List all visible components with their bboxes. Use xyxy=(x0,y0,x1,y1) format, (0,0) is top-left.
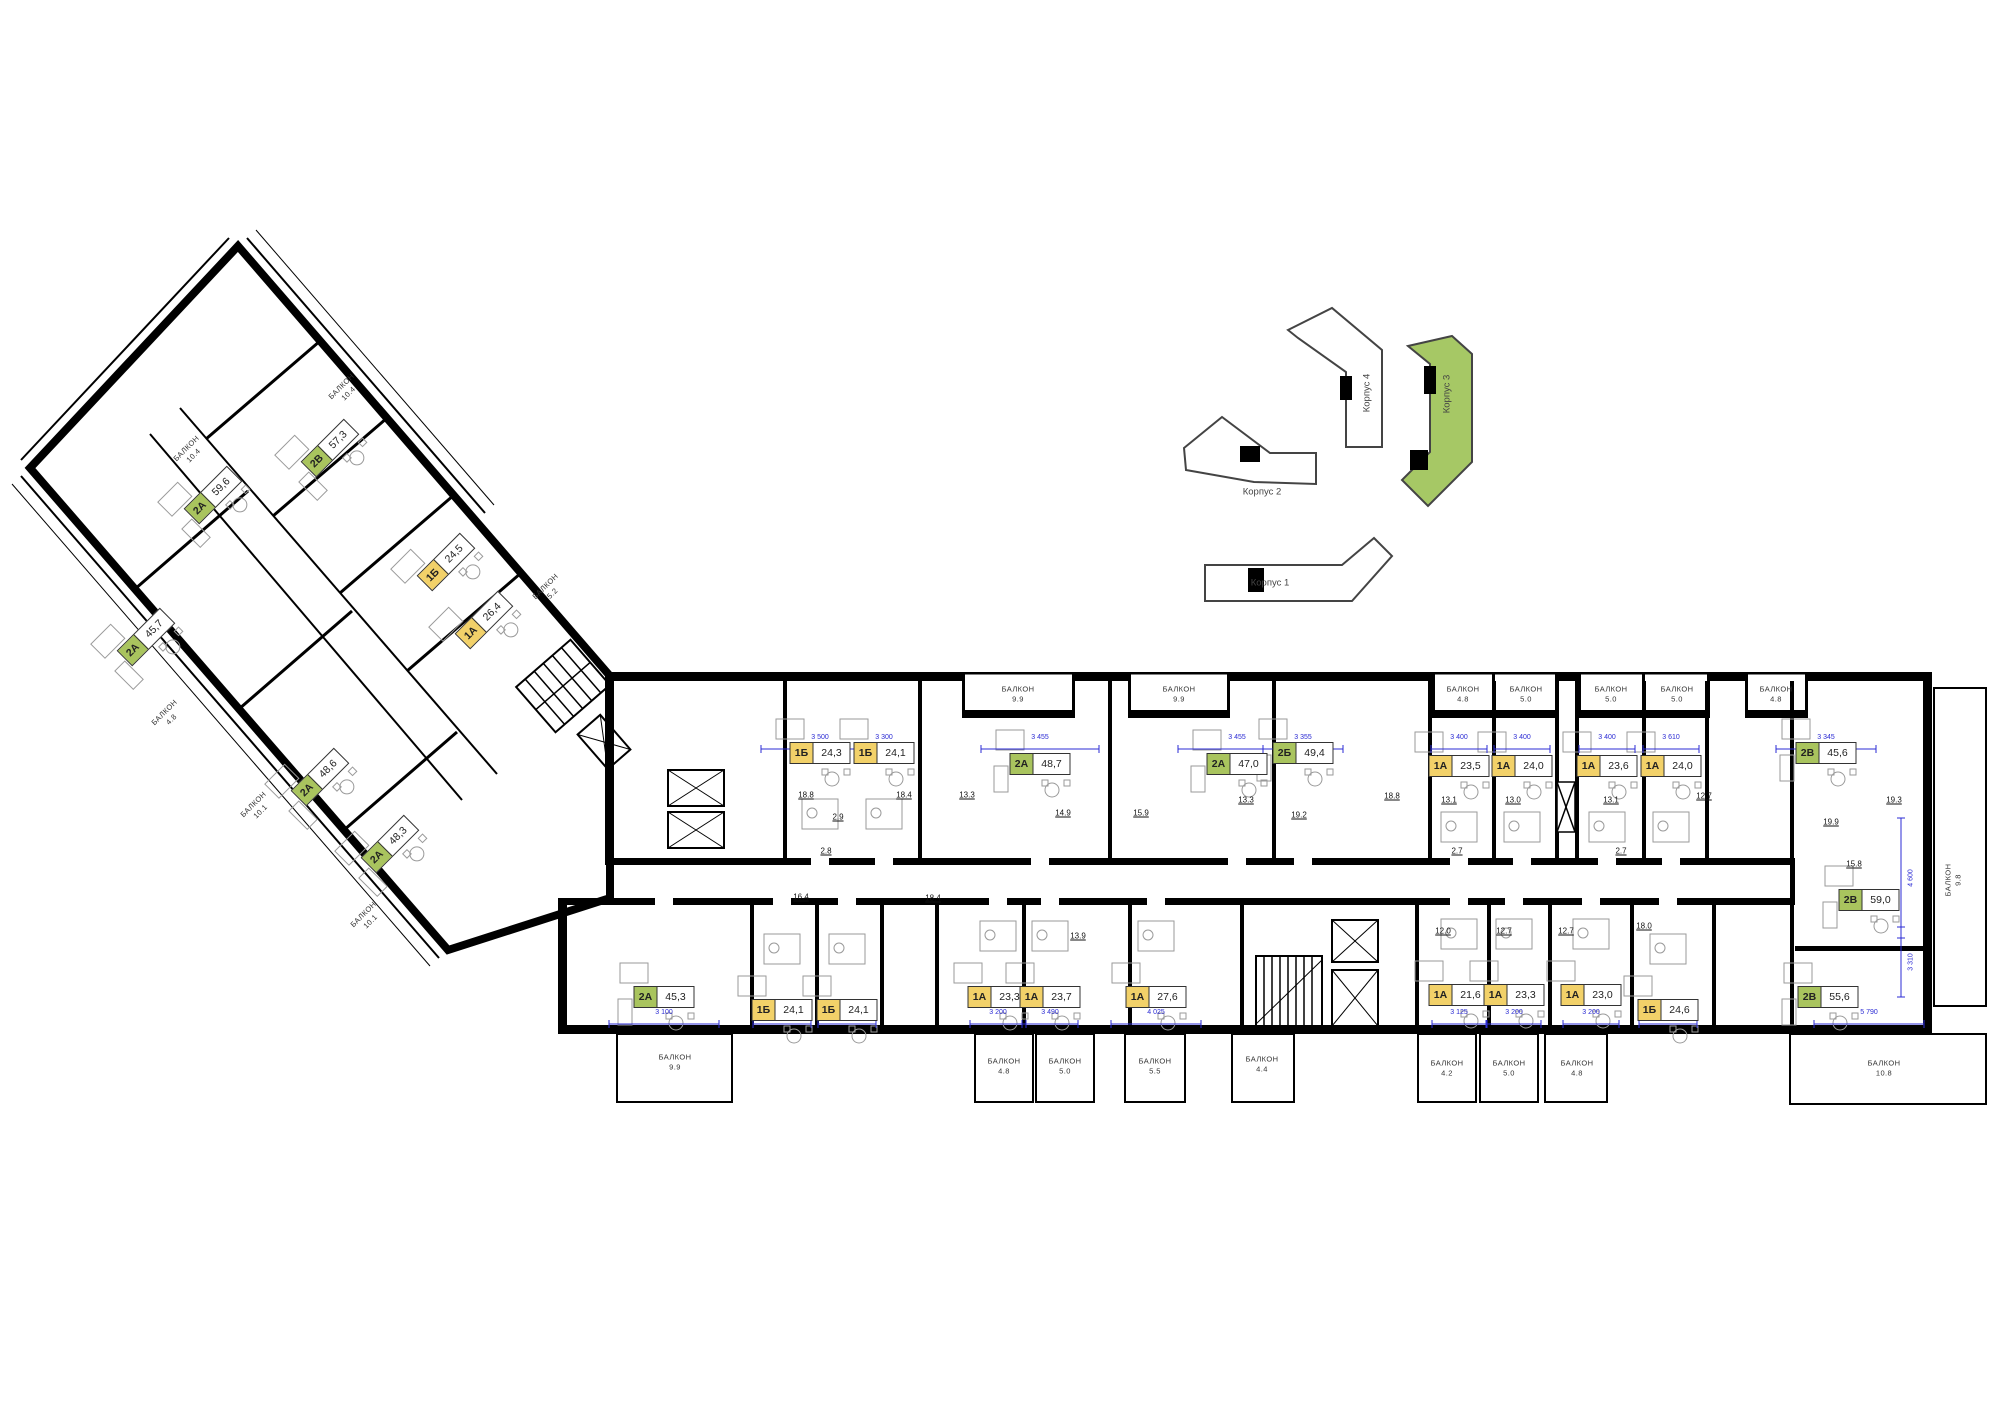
unit-type: 2А xyxy=(1208,754,1231,774)
unit-type: 1А xyxy=(1485,985,1508,1005)
unit-badge-2А[interactable]: 2А48,3 xyxy=(361,815,420,874)
unit-badge-2А[interactable]: 2А45,7 xyxy=(117,608,176,667)
unit-area: 27,6 xyxy=(1150,987,1186,1007)
unit-type: 1А xyxy=(1642,756,1665,776)
unit-type: 2В xyxy=(1799,987,1822,1007)
unit-type: 2А xyxy=(635,987,658,1007)
unit-area: 24,1 xyxy=(841,1000,877,1020)
unit-type: 2В xyxy=(1840,890,1863,910)
unit-badge-1А[interactable]: 1А24,0 xyxy=(1492,755,1553,777)
unit-type: 1А xyxy=(969,987,992,1007)
unit-badge-1А[interactable]: 1А21,6 xyxy=(1429,984,1490,1006)
unit-type: 1Б xyxy=(791,743,814,763)
unit-badge-1Б[interactable]: 1Б24,1 xyxy=(752,999,813,1021)
minimap-label-korpus-4[interactable]: Корпус 4 xyxy=(1362,374,1373,413)
unit-badge-1А[interactable]: 1А23,5 xyxy=(1429,755,1490,777)
unit-badge-2В[interactable]: 2В57,3 xyxy=(301,419,360,478)
unit-badge-2А[interactable]: 2А59,6 xyxy=(184,466,243,525)
unit-area: 23,3 xyxy=(1508,985,1544,1005)
minimap-label-korpus-2[interactable]: Корпус 2 xyxy=(1243,487,1282,498)
unit-area: 47,0 xyxy=(1231,754,1267,774)
unit-type: 1Б xyxy=(855,743,878,763)
unit-area: 24,6 xyxy=(1662,1000,1698,1020)
unit-badge-1Б[interactable]: 1Б24,1 xyxy=(817,999,878,1021)
unit-badge-1А[interactable]: 1А27,6 xyxy=(1126,986,1187,1008)
unit-badge-2В[interactable]: 2В45,6 xyxy=(1796,742,1857,764)
unit-badge-1А[interactable]: 1А23,6 xyxy=(1577,755,1638,777)
unit-type: 1А xyxy=(1562,985,1585,1005)
minimap-label-korpus-1[interactable]: Корпус 1 xyxy=(1251,578,1290,589)
unit-badge-2В[interactable]: 2В59,0 xyxy=(1839,889,1900,911)
unit-area: 24,3 xyxy=(814,743,850,763)
unit-type: 1А xyxy=(1578,756,1601,776)
unit-area: 24,0 xyxy=(1516,756,1552,776)
unit-area: 23,0 xyxy=(1585,985,1621,1005)
unit-type: 1А xyxy=(1493,756,1516,776)
unit-type: 1А xyxy=(1127,987,1150,1007)
unit-area: 23,6 xyxy=(1601,756,1637,776)
unit-type: 1Б xyxy=(753,1000,776,1020)
unit-type: 1А xyxy=(1430,756,1453,776)
unit-badge-1Б[interactable]: 1Б24,1 xyxy=(854,742,915,764)
unit-badge-1А[interactable]: 1А24,0 xyxy=(1641,755,1702,777)
unit-type: 1Б xyxy=(1639,1000,1662,1020)
unit-badge-2А[interactable]: 2А48,6 xyxy=(291,748,350,807)
unit-area: 24,1 xyxy=(878,743,914,763)
unit-area: 24,0 xyxy=(1665,756,1701,776)
unit-type: 1А xyxy=(1430,985,1453,1005)
unit-area: 48,7 xyxy=(1034,754,1070,774)
unit-badge-1Б[interactable]: 1Б24,6 xyxy=(1638,999,1699,1021)
unit-area: 59,0 xyxy=(1863,890,1899,910)
unit-badge-1Б[interactable]: 1Б24,5 xyxy=(417,533,476,592)
unit-area: 23,7 xyxy=(1044,987,1080,1007)
unit-badge-2А[interactable]: 2А45,3 xyxy=(634,986,695,1008)
unit-area: 45,6 xyxy=(1820,743,1856,763)
floorplan-page: Корпус 1 Корпус 2 Корпус 3 Корпус 4 БАЛК… xyxy=(0,0,2000,1415)
unit-type: 1Б xyxy=(818,1000,841,1020)
unit-type: 2Б xyxy=(1274,743,1297,763)
unit-type: 2А xyxy=(1011,754,1034,774)
unit-badges-layer: 2В57,32А59,61Б24,51А26,42А45,72А48,62А48… xyxy=(0,0,2000,1415)
unit-area: 49,4 xyxy=(1297,743,1333,763)
unit-badge-1А[interactable]: 1А23,7 xyxy=(1020,986,1081,1008)
unit-badge-2В[interactable]: 2В55,6 xyxy=(1798,986,1859,1008)
unit-area: 24,1 xyxy=(776,1000,812,1020)
minimap-label-korpus-3[interactable]: Корпус 3 xyxy=(1442,375,1453,414)
unit-area: 55,6 xyxy=(1822,987,1858,1007)
unit-badge-1Б[interactable]: 1Б24,3 xyxy=(790,742,851,764)
unit-area: 23,5 xyxy=(1453,756,1489,776)
unit-badge-2А[interactable]: 2А48,7 xyxy=(1010,753,1071,775)
unit-type: 1А xyxy=(1021,987,1044,1007)
unit-area: 45,3 xyxy=(658,987,694,1007)
unit-badge-1А[interactable]: 1А23,0 xyxy=(1561,984,1622,1006)
unit-badge-2А[interactable]: 2А47,0 xyxy=(1207,753,1268,775)
unit-type: 2В xyxy=(1797,743,1820,763)
unit-badge-1А[interactable]: 1А26,4 xyxy=(455,591,514,650)
unit-badge-2Б[interactable]: 2Б49,4 xyxy=(1273,742,1334,764)
unit-badge-1А[interactable]: 1А23,3 xyxy=(1484,984,1545,1006)
